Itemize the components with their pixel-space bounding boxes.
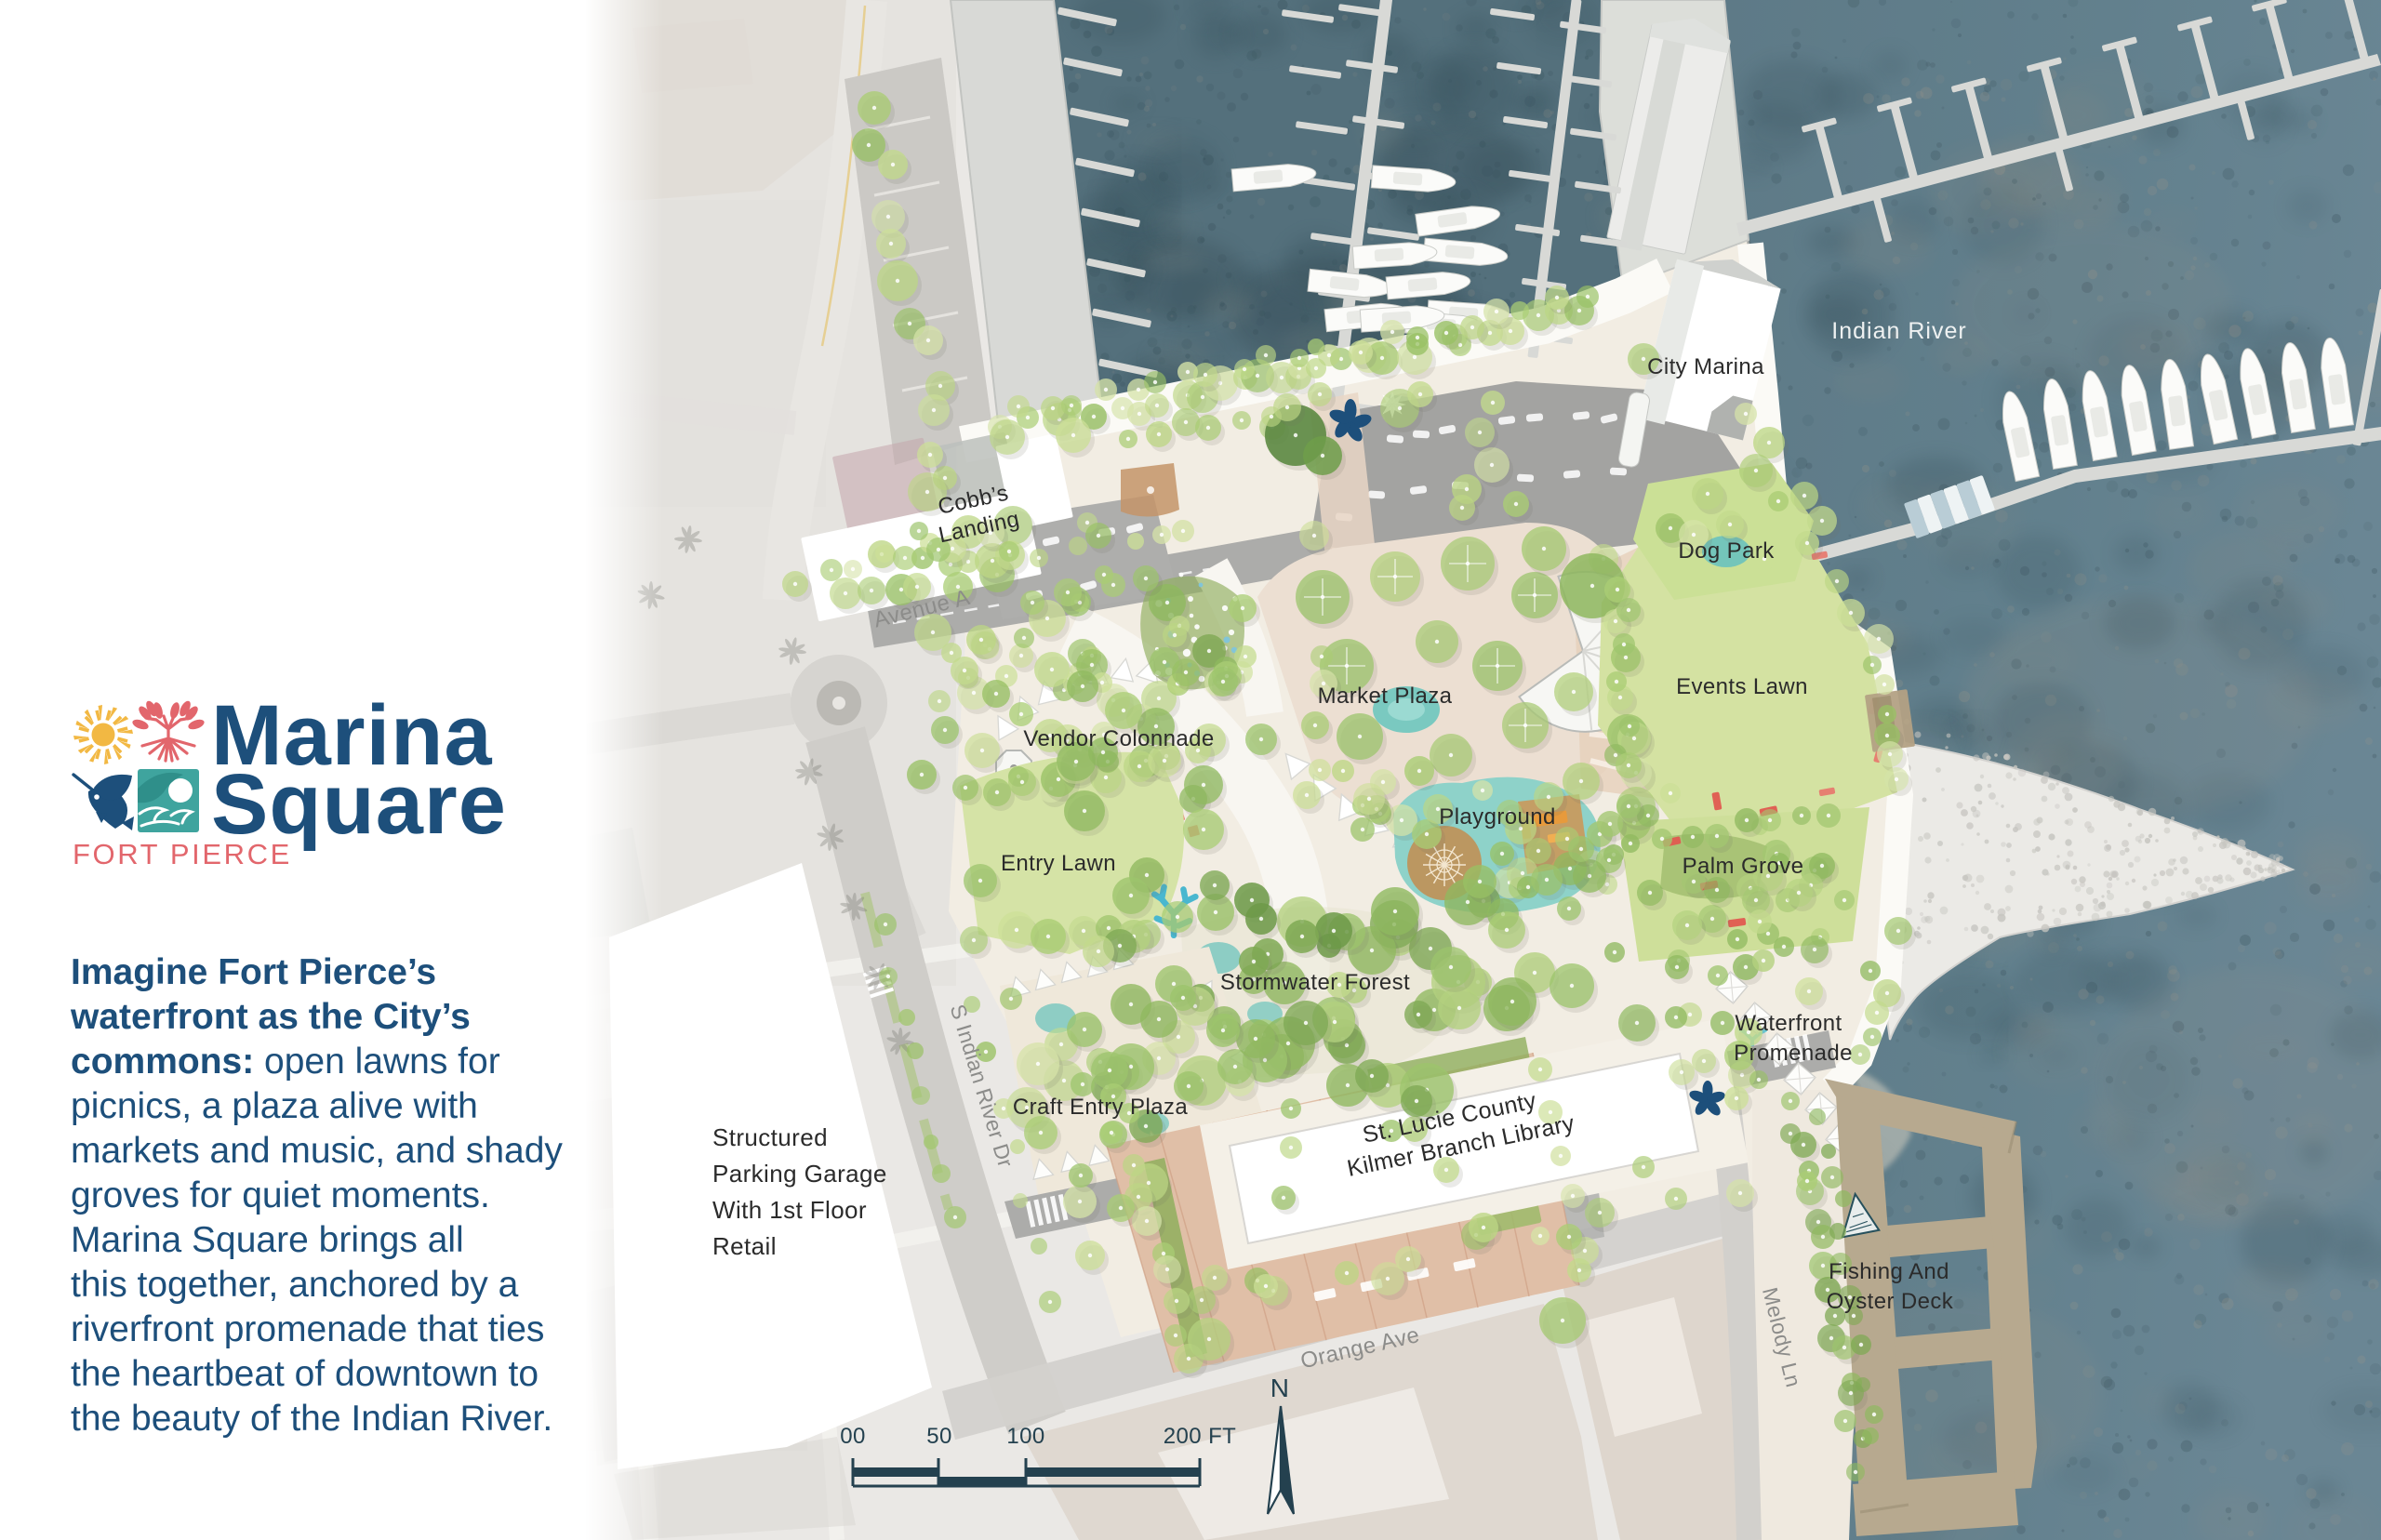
svg-text:100: 100 <box>1006 1424 1044 1449</box>
svg-text:200 FT: 200 FT <box>1164 1424 1236 1449</box>
svg-text:N: N <box>1270 1374 1290 1402</box>
svg-text:Stormwater Forest: Stormwater Forest <box>1220 970 1410 995</box>
svg-text:Craft Entry Plaza: Craft Entry Plaza <box>1013 1095 1188 1120</box>
svg-text:Structured: Structured <box>712 1123 828 1151</box>
svg-text:With 1st Floor: With 1st Floor <box>712 1196 867 1224</box>
svg-text:Entry Lawn: Entry Lawn <box>1001 851 1116 876</box>
svg-text:Parking Garage: Parking Garage <box>712 1160 887 1188</box>
svg-text:Waterfront: Waterfront <box>1735 1011 1842 1036</box>
svg-text:Promenade: Promenade <box>1734 1041 1853 1066</box>
svg-text:Indian River: Indian River <box>1831 318 1966 344</box>
svg-text:Retail: Retail <box>712 1232 777 1260</box>
svg-text:Playground: Playground <box>1439 804 1555 830</box>
svg-text:Fishing And: Fishing And <box>1829 1259 1949 1284</box>
svg-text:City Marina: City Marina <box>1647 354 1764 379</box>
svg-text:00: 00 <box>840 1424 866 1449</box>
svg-text:Market Plaza: Market Plaza <box>1318 684 1453 709</box>
svg-text:Events Lawn: Events Lawn <box>1676 674 1808 699</box>
svg-text:Dog Park: Dog Park <box>1678 538 1775 564</box>
svg-text:50: 50 <box>926 1424 952 1449</box>
svg-text:Vendor Colonnade: Vendor Colonnade <box>1023 726 1214 751</box>
svg-text:Oyster Deck: Oyster Deck <box>1827 1289 1954 1314</box>
svg-text:Palm Grove: Palm Grove <box>1683 854 1804 879</box>
svg-text:FORT PIERCE: FORT PIERCE <box>73 838 292 870</box>
